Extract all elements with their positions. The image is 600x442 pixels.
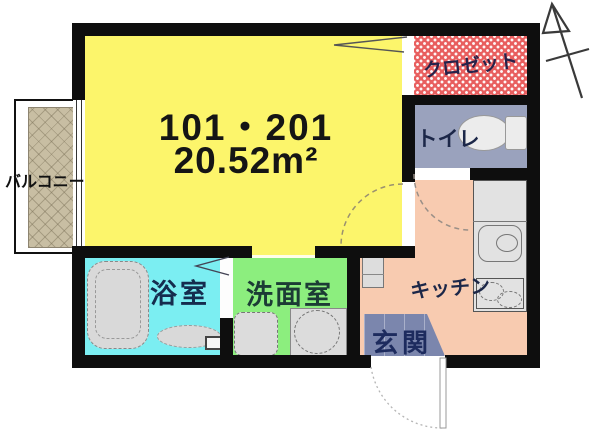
entrance-door-leaf <box>440 358 446 428</box>
kitchen-sink-basin <box>496 234 518 252</box>
wall-mid-right <box>315 246 415 258</box>
floor-plan: 101・201 20.52m² バルコニー クロゼット トイレ キッチン 玄関 … <box>0 0 600 442</box>
toilet-label: トイレ <box>413 123 483 153</box>
entrance-door-arc <box>371 367 443 428</box>
stove-burner <box>497 291 522 308</box>
washroom-opening <box>252 255 315 258</box>
kitchen-label: キッチン <box>407 269 493 304</box>
wall-right <box>527 23 540 368</box>
washroom-label: 洗面室 <box>246 273 333 312</box>
washing-machine-drum <box>294 310 340 354</box>
bathroom-label: 浴室 <box>150 272 210 311</box>
floor-area-label: 20.52m² <box>86 140 406 182</box>
wall-left-upper <box>72 23 85 100</box>
wall-bottom-right <box>445 355 540 368</box>
wall-left-lower <box>72 246 85 368</box>
wall-bath-partition <box>220 318 233 356</box>
bathroom-door-opening <box>220 258 233 318</box>
north-arrow-icon <box>543 4 589 98</box>
toilet-door-opening <box>415 168 470 180</box>
kitchen-cabinet-divider <box>362 274 384 275</box>
wall-washroom-kitchen <box>347 258 360 368</box>
entrance-label: 玄関 <box>372 323 432 360</box>
wall-mid-left <box>72 246 252 258</box>
wall-bottom-left <box>72 355 371 368</box>
wall-closet-toilet <box>402 95 527 105</box>
wall-top <box>72 23 540 36</box>
wall-toilet-bottom <box>470 168 527 180</box>
toilet-tank <box>505 116 527 150</box>
bathtub-inner <box>95 269 141 339</box>
kitchen-cabinet <box>362 256 384 288</box>
closet-door-opening <box>402 36 414 95</box>
main-door-opening <box>402 182 415 246</box>
counter-divider <box>473 221 527 222</box>
balcony-label: バルコニー <box>5 168 85 192</box>
washing-machine-pan <box>234 312 278 356</box>
